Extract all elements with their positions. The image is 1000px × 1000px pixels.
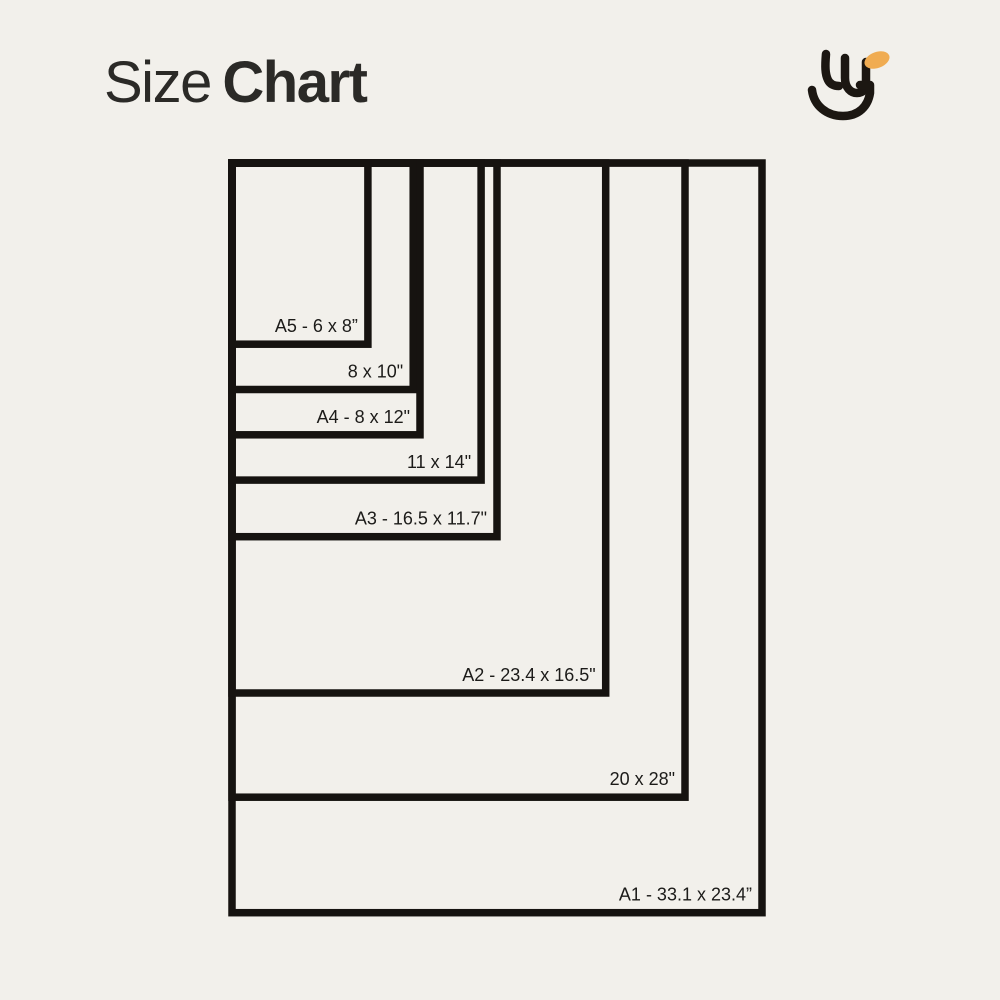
size-label-A5: A5 - 6 x 8”	[275, 316, 358, 336]
size-label-11x14: 11 x 14"	[407, 452, 471, 472]
size-label-A4: A4 - 8 x 12"	[317, 407, 410, 427]
size-label-A1: A1 - 33.1 x 23.4”	[619, 885, 752, 905]
size-label-20x28: 20 x 28"	[610, 769, 675, 789]
size-chart-page: SizeChart A1 - 33.1 x 23.4”20 x 28"A2 - …	[0, 0, 1000, 1000]
size-rect-8x10	[232, 163, 413, 390]
size-rect-A4	[232, 163, 420, 435]
size-label-8x10: 8 x 10"	[348, 362, 403, 382]
size-label-A3: A3 - 16.5 x 11.7"	[355, 509, 487, 529]
size-label-A2: A2 - 23.4 x 16.5"	[462, 665, 595, 685]
size-chart-figure: A1 - 33.1 x 23.4”20 x 28"A2 - 23.4 x 16.…	[0, 0, 1000, 1000]
